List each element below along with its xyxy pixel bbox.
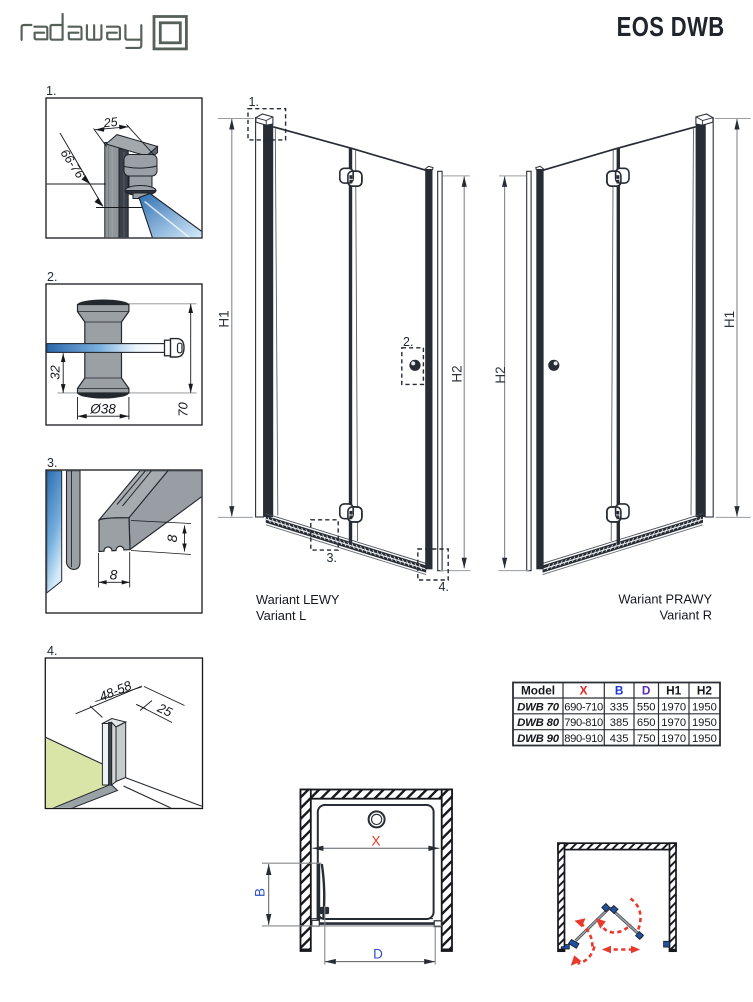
svg-text:X: X <box>371 834 380 849</box>
svg-text:8: 8 <box>164 534 180 542</box>
svg-text:DWB 80: DWB 80 <box>517 717 560 729</box>
svg-text:3.: 3. <box>327 551 337 565</box>
svg-text:1.: 1. <box>249 95 259 109</box>
svg-text:650: 650 <box>637 717 656 729</box>
svg-text:3.: 3. <box>47 456 57 470</box>
svg-text:DWB 90: DWB 90 <box>517 733 560 745</box>
svg-text:H2: H2 <box>697 684 713 698</box>
svg-text:890-910: 890-910 <box>564 733 603 745</box>
svg-text:690-710: 690-710 <box>564 701 603 713</box>
svg-text:2.: 2. <box>403 335 413 349</box>
svg-text:H1: H1 <box>722 311 737 328</box>
svg-text:25: 25 <box>102 115 118 130</box>
svg-text:32: 32 <box>48 365 63 380</box>
svg-text:Wariant LEWY: Wariant LEWY <box>256 592 340 607</box>
svg-text:385: 385 <box>610 717 629 729</box>
svg-text:Variant R: Variant R <box>660 608 712 623</box>
svg-text:1970: 1970 <box>661 701 686 713</box>
svg-text:4.: 4. <box>439 580 449 594</box>
svg-text:1.: 1. <box>46 84 56 98</box>
svg-text:H2: H2 <box>493 366 508 383</box>
svg-text:2.: 2. <box>47 270 57 284</box>
svg-text:H1: H1 <box>666 684 682 698</box>
svg-text:435: 435 <box>610 733 629 745</box>
svg-text:X: X <box>580 684 588 698</box>
svg-text:750: 750 <box>637 733 656 745</box>
svg-text:D: D <box>642 684 651 698</box>
svg-text:70: 70 <box>176 402 191 417</box>
svg-text:H2: H2 <box>450 365 465 382</box>
svg-text:1950: 1950 <box>692 717 717 729</box>
svg-text:DWB 70: DWB 70 <box>517 701 560 713</box>
svg-text:4.: 4. <box>47 644 57 658</box>
svg-text:EOS DWB: EOS DWB <box>617 12 725 43</box>
svg-text:1970: 1970 <box>661 733 686 745</box>
svg-text:H1: H1 <box>217 310 232 327</box>
svg-text:8: 8 <box>110 567 118 583</box>
svg-text:Wariant PRAWY: Wariant PRAWY <box>618 592 712 607</box>
svg-text:1970: 1970 <box>661 717 686 729</box>
svg-text:Model: Model <box>521 684 555 698</box>
svg-text:1950: 1950 <box>692 701 717 713</box>
svg-text:B: B <box>253 888 268 897</box>
svg-text:Variant L: Variant L <box>256 608 306 623</box>
svg-text:1950: 1950 <box>692 733 717 745</box>
svg-text:D: D <box>373 947 383 962</box>
svg-text:Ø38: Ø38 <box>89 401 116 416</box>
svg-text:790-810: 790-810 <box>564 717 603 729</box>
svg-text:335: 335 <box>610 701 629 713</box>
svg-text:B: B <box>615 684 624 698</box>
svg-text:550: 550 <box>637 701 656 713</box>
